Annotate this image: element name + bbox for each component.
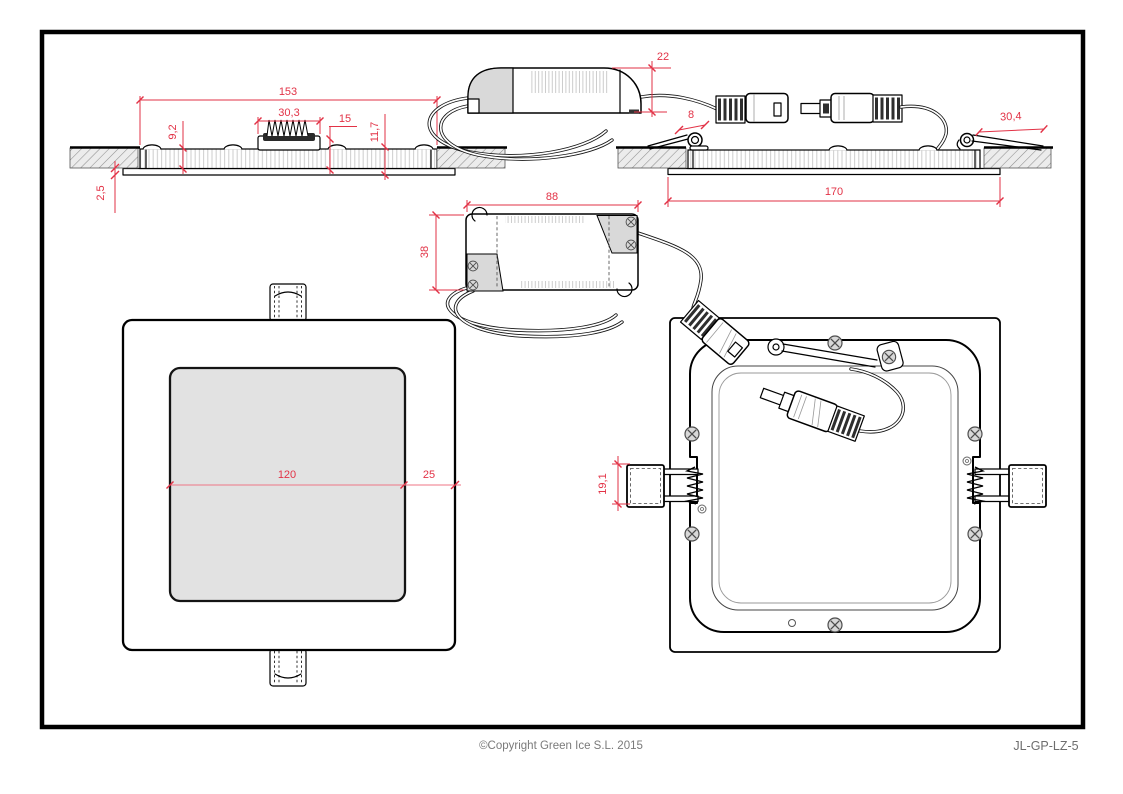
mounting-bump [829,146,847,151]
trim-lip [668,169,1000,175]
vent-slots [530,71,608,93]
mounting-bump [143,145,161,150]
dim-label-88: 88 [546,191,558,203]
dim-label-11-7: 11,7 [369,122,381,143]
dim-label-30-4: 30,4 [1000,110,1022,123]
back-cover [690,340,980,632]
dim-label-25: 25 [423,469,435,481]
dc-jack-female [716,94,788,124]
driver-notch [468,99,479,113]
ceiling-hatch-left [70,148,138,168]
mounting-bump [224,145,242,150]
phillips-screw [685,527,699,541]
dim-label-15: 15 [339,113,351,125]
mounting-bump [415,145,433,150]
dim-label-120: 120 [278,469,296,481]
phillips-screw [828,336,842,350]
dim-label-153: 153 [279,86,297,98]
dim-label-30-3: 30,3 [278,107,299,119]
front-clip-bottom [270,649,306,686]
phillips-screw [828,618,842,632]
terminal-screw [626,240,636,250]
view-front-panel: 120 25 [123,284,461,686]
panel-housing [140,149,437,169]
front-clip-top [270,284,306,321]
terminal-screw [626,217,636,227]
trim-lip [123,169,455,176]
part-number: JL-GP-LZ-5 [1013,739,1078,753]
panel-housing [688,150,980,169]
dim-label-19-1: 19,1 [597,473,609,494]
drawing-sheet: 153 30,3 15 9,2 11,7 2,5 [0,0,1123,794]
dim-label-22: 22 [657,51,669,63]
dim-label-8: 8 [688,109,694,121]
phillips-screw [968,427,982,441]
copyright-text: ©Copyright Green Ice S.L. 2015 [479,740,643,752]
terminal-screw [468,261,478,271]
clamp-screw [882,350,895,363]
ceiling-hatch-left [618,148,686,168]
technical-drawing-canvas: 153 30,3 15 9,2 11,7 2,5 [0,0,1123,794]
jack-slot [774,103,781,116]
dim-label-2-5: 2,5 [95,185,107,200]
pilot-hole [789,620,796,627]
dim-label-38: 38 [419,246,431,258]
dim-label-9-2: 9,2 [167,124,179,139]
terminal-screw [468,280,478,290]
mounting-bump [328,145,346,150]
ceiling-hatch-right [984,148,1051,168]
mounting-bump [919,146,937,151]
dim-label-170: 170 [825,186,843,198]
phillips-screw [968,527,982,541]
phillips-screw [685,427,699,441]
